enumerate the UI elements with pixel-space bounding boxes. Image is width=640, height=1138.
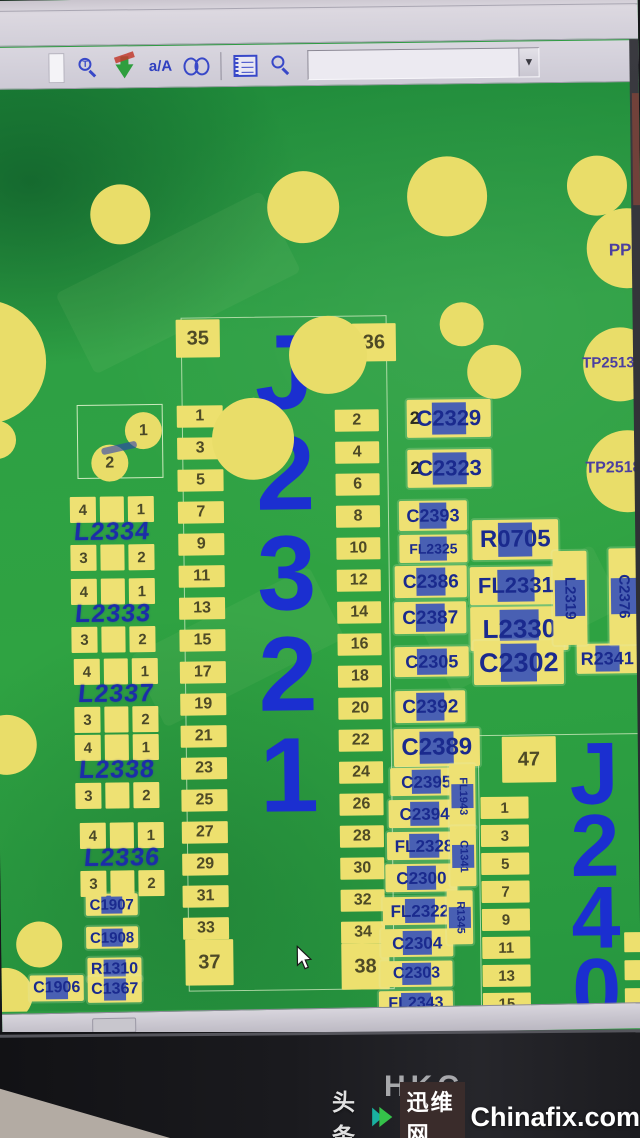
component-label: L2334 xyxy=(63,517,162,547)
component-label: C2323 xyxy=(417,457,482,480)
component-label: C2389 xyxy=(401,735,472,760)
component-label: FL1943 xyxy=(457,777,468,815)
via-pad xyxy=(467,345,522,400)
pad xyxy=(110,870,134,896)
pin-7[interactable]: 7 xyxy=(481,880,529,903)
pin-28[interactable]: 28 xyxy=(340,825,384,848)
pin-30[interactable]: 30 xyxy=(340,857,384,880)
refdes-char: 1 xyxy=(237,725,342,827)
component-label: R2341 xyxy=(581,649,634,668)
component-label: C1367 xyxy=(91,981,138,998)
search-combobox[interactable]: ▼ xyxy=(307,47,539,80)
component-label: L2338 xyxy=(68,755,167,785)
component-label: C2393 xyxy=(406,506,459,525)
component-l2337[interactable]: 4132L2337 xyxy=(74,658,159,733)
pin-12[interactable]: 12 xyxy=(337,569,381,592)
pin-13[interactable]: 13 xyxy=(482,964,530,987)
pad-number[interactable]: 3 xyxy=(70,545,96,571)
component-label: C1341 xyxy=(457,840,468,873)
pin-4[interactable]: 4 xyxy=(335,441,379,464)
combobox-dropdown-button[interactable]: ▼ xyxy=(518,48,538,76)
component-fl2325[interactable]: FL2325 xyxy=(399,534,467,563)
component-c2323[interactable]: 2C2323 xyxy=(407,449,491,488)
zoom-text-icon: T xyxy=(78,57,98,77)
pin-31[interactable]: 31 xyxy=(182,885,228,908)
pin-29[interactable]: 29 xyxy=(182,853,228,876)
pad-number[interactable]: 2 xyxy=(138,870,164,896)
component-label: FL2325 xyxy=(409,541,457,556)
component-label: L2337 xyxy=(67,679,166,709)
via-pad xyxy=(0,421,16,459)
pin-32[interactable]: 32 xyxy=(341,889,385,912)
component-c1908[interactable]: C1908 xyxy=(86,926,138,949)
pin-18[interactable]: 18 xyxy=(338,665,382,688)
connector-j2401[interactable]: 4713579111315171921182022J2401 xyxy=(476,727,640,1012)
boardview-canvas[interactable]: 1 2 353613579111315171921232527293133246… xyxy=(0,82,640,1012)
component-label: L2336 xyxy=(73,843,172,873)
pin-16[interactable]: 16 xyxy=(337,633,381,656)
pin-17[interactable]: 17 xyxy=(180,661,226,684)
component-label: C2392 xyxy=(402,697,458,717)
component-r2341[interactable]: R2341 xyxy=(577,643,638,674)
watermark-prefix: 头条 xyxy=(332,1083,365,1138)
component-l2336[interactable]: 4132L2336 xyxy=(80,822,165,897)
case-toggle-button[interactable]: a/A xyxy=(143,49,177,83)
toolbar-left-space xyxy=(0,47,49,89)
notebook-icon xyxy=(233,54,257,76)
search-input[interactable] xyxy=(308,48,518,79)
component-label: C2304 xyxy=(392,934,442,952)
pad xyxy=(100,544,124,570)
status-chip[interactable] xyxy=(92,1017,136,1033)
component-label: FL2331 xyxy=(478,574,554,597)
component-c1341[interactable]: C1341 xyxy=(450,826,477,886)
pin-5[interactable]: 5 xyxy=(177,469,223,492)
pad-number[interactable]: 2 xyxy=(132,706,158,732)
mouse-cursor xyxy=(296,945,314,971)
pad xyxy=(105,782,129,808)
pin-7[interactable]: 7 xyxy=(178,501,224,524)
window-titlebar xyxy=(0,0,638,47)
refdes-char: 2 xyxy=(235,624,340,726)
via-pad xyxy=(0,968,33,1012)
component-label: C2329 xyxy=(416,407,481,430)
component-c2305[interactable]: C2305 xyxy=(395,646,469,677)
component-label: C2394 xyxy=(399,805,449,823)
photo-frame: T a/A xyxy=(0,0,640,1138)
via-pad xyxy=(16,921,63,968)
pin-8[interactable]: 8 xyxy=(336,505,380,528)
component-label: FL2322 xyxy=(390,902,449,920)
pin-19[interactable]: 19 xyxy=(180,693,226,716)
component-c2393[interactable]: C2393 xyxy=(399,500,467,531)
pin-27[interactable]: 27 xyxy=(182,821,228,844)
component-label: L2319 xyxy=(562,577,578,620)
component-c1906[interactable]: C1906 xyxy=(30,975,84,1002)
pin-9[interactable]: 9 xyxy=(178,533,224,556)
component-l2334[interactable]: 4132L2334 xyxy=(70,496,155,571)
chevron-down-icon: ▼ xyxy=(523,56,534,68)
pad-35[interactable]: 35 xyxy=(176,319,220,358)
component-label: R1345 xyxy=(454,901,465,934)
component-l2338[interactable]: 4132L2338 xyxy=(75,734,160,809)
component-c1367[interactable]: C1367 xyxy=(88,976,142,1003)
component-label: R0705 xyxy=(480,527,551,552)
pin-26[interactable]: 26 xyxy=(339,793,383,816)
via-pad xyxy=(90,184,151,245)
testpoint-label-pp[interactable]: PP xyxy=(609,240,632,260)
pad-47[interactable]: 47 xyxy=(502,736,557,783)
find-button[interactable] xyxy=(179,49,213,83)
via-pad xyxy=(0,714,37,775)
component-c2300[interactable]: C2300 xyxy=(385,863,457,892)
pin-15[interactable]: 15 xyxy=(179,629,225,652)
pad xyxy=(101,626,125,652)
pin-11[interactable]: 11 xyxy=(482,936,530,959)
component-c2392[interactable]: C2392 xyxy=(395,690,465,723)
component-label: C2305 xyxy=(405,652,458,671)
netlist-button[interactable] xyxy=(228,48,262,82)
pin-6[interactable]: 6 xyxy=(335,473,379,496)
component-r0705[interactable]: R0705 xyxy=(472,519,558,560)
testpoint-label-tp2518[interactable]: TP2518 xyxy=(585,459,640,478)
connector-j2321[interactable]: 3536135791113151719212325272931332468101… xyxy=(176,313,402,998)
refdes-char: 3 xyxy=(234,523,339,625)
pin-3[interactable]: 3 xyxy=(481,824,529,847)
component-c2387[interactable]: C2387 xyxy=(394,601,466,634)
via-pad xyxy=(0,299,47,425)
pad-number[interactable]: 3 xyxy=(75,783,101,809)
pin-13[interactable]: 13 xyxy=(179,597,225,620)
component-label: C1907 xyxy=(90,897,134,913)
via-pad xyxy=(567,155,628,216)
component-label: C2303 xyxy=(393,966,440,983)
toolbar-edge-button[interactable] xyxy=(48,53,64,83)
pad-number[interactable]: 2 xyxy=(129,626,155,652)
component-label: C2395 xyxy=(401,773,451,791)
pin-21[interactable]: 21 xyxy=(181,725,227,748)
testpoint-label-tp2513[interactable]: TP2513 xyxy=(582,354,635,372)
component-c2303[interactable]: C2303 xyxy=(380,960,452,987)
component-cap-square[interactable]: 1 2 xyxy=(77,404,164,479)
component-c2389[interactable]: C2389 xyxy=(394,728,480,767)
monitor-screen: T a/A xyxy=(0,0,640,1041)
watermark-site-en: Chinafix.com xyxy=(470,1102,640,1133)
pin-9[interactable]: 9 xyxy=(482,908,530,931)
sync-arrows-icon xyxy=(108,52,140,82)
pin-10[interactable]: 10 xyxy=(336,537,380,560)
pin-5[interactable]: 5 xyxy=(481,852,529,875)
case-toggle-icon: a/A xyxy=(149,58,173,75)
pad-37[interactable]: 37 xyxy=(185,939,234,986)
component-l2333[interactable]: 4132L2333 xyxy=(71,578,156,653)
binoculars-icon xyxy=(183,57,209,75)
chinafix-logo-icon xyxy=(370,1100,394,1134)
pin-23[interactable]: 23 xyxy=(181,757,227,780)
pad-number[interactable]: 3 xyxy=(80,871,106,897)
pin-14[interactable]: 14 xyxy=(337,601,381,624)
pin-34[interactable]: 34 xyxy=(341,921,385,944)
component-label: C2376 xyxy=(616,574,632,618)
toolbar-separator xyxy=(220,52,221,80)
refdes-j2401: J2401 xyxy=(558,737,634,1012)
component-label: L2333 xyxy=(64,599,163,629)
pad-number[interactable]: 2 xyxy=(133,782,159,808)
pad xyxy=(104,706,128,732)
component-label: C2300 xyxy=(396,869,446,887)
zoom-icon xyxy=(271,55,291,75)
via-pad xyxy=(439,302,484,347)
component-r1345[interactable]: R1345 xyxy=(447,890,474,944)
via-pad xyxy=(407,156,488,237)
pin-20[interactable]: 20 xyxy=(338,697,382,720)
screen-edge-reflection xyxy=(632,93,640,205)
titlebar-hairline xyxy=(0,3,638,12)
component-label: C2386 xyxy=(403,572,459,592)
component-c2304[interactable]: C2304 xyxy=(381,928,453,957)
component-label: C1906 xyxy=(33,980,80,997)
component-c2386[interactable]: C2386 xyxy=(395,565,467,598)
pin-22[interactable]: 22 xyxy=(339,729,383,752)
pin-24[interactable]: 24 xyxy=(339,761,383,784)
pad-number[interactable]: 2 xyxy=(128,544,154,570)
pin-2[interactable]: 2 xyxy=(335,409,379,432)
pin-33[interactable]: 33 xyxy=(183,917,229,940)
component-label: C2302 xyxy=(479,649,559,677)
pin-1[interactable]: 1 xyxy=(480,796,528,819)
component-c2329[interactable]: 2C2329 xyxy=(407,399,491,438)
zoom-button[interactable] xyxy=(264,48,298,82)
via-pad xyxy=(267,171,340,244)
watermark-bar: 头条 迅维网 Chinafix.com xyxy=(332,1096,640,1138)
pin-25[interactable]: 25 xyxy=(181,789,227,812)
pin-11[interactable]: 11 xyxy=(179,565,225,588)
component-label: C1908 xyxy=(90,930,134,946)
component-label: C2387 xyxy=(402,608,458,628)
component-c2302[interactable]: C2302 xyxy=(474,640,565,685)
component-fl2331[interactable]: FL2331 xyxy=(470,566,562,605)
component-fl1943[interactable]: FL1943 xyxy=(449,764,476,828)
component-label: FL2328 xyxy=(395,837,454,855)
pad-number[interactable]: 3 xyxy=(74,707,100,733)
component-l2319[interactable]: L2319 xyxy=(552,551,587,645)
zoom-text-button[interactable]: T xyxy=(71,50,105,84)
component-label: L2330 xyxy=(482,615,556,642)
pad-number[interactable]: 3 xyxy=(71,627,97,653)
sync-arrows-button[interactable] xyxy=(107,50,141,84)
watermark-site-cn: 迅维网 xyxy=(400,1082,466,1138)
